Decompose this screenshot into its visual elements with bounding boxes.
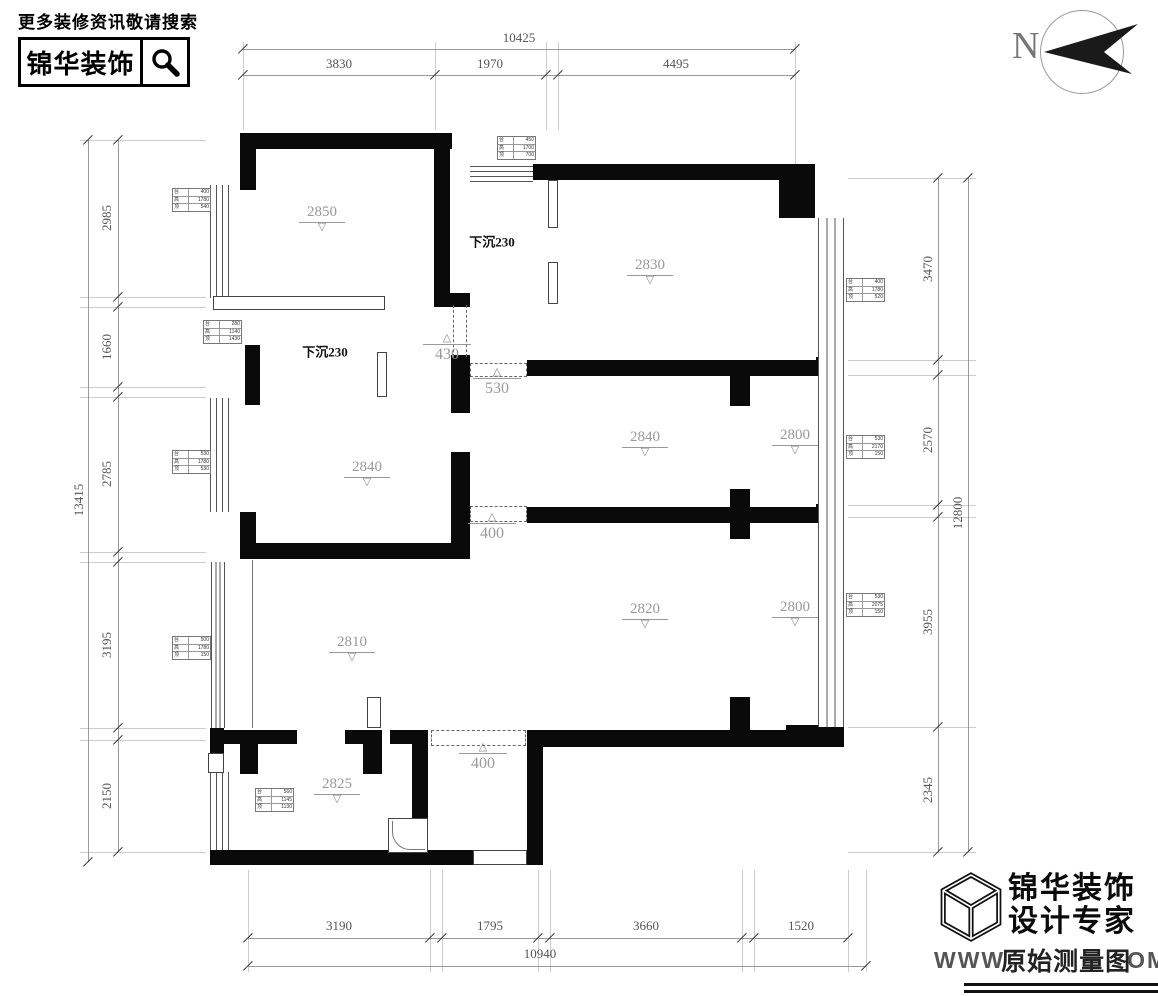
window-spec-cell: 1130 [272, 804, 293, 811]
window-spec-tag: 台450高1700顶700 [497, 136, 536, 160]
window-spec-cell: 560 [272, 789, 293, 796]
window-spec-cell: 台 [847, 279, 863, 286]
window [211, 562, 225, 728]
window-spec-cell: 1780 [863, 287, 884, 294]
extension-line [848, 178, 976, 179]
ceiling-level-marker: 2850▽ [299, 205, 345, 233]
dim-label: 2570 [920, 427, 936, 453]
wall [210, 850, 247, 865]
level-triangle-icon: ▽ [344, 477, 390, 488]
extension-line [795, 130, 796, 164]
wall [240, 133, 452, 149]
window-spec-row: 台530 [173, 451, 210, 459]
extension-line [558, 42, 559, 130]
window-spec-row: 顶1130 [256, 804, 293, 811]
level-triangle-icon: ▽ [299, 222, 345, 233]
dim-label: 2785 [99, 461, 115, 487]
extension-line [795, 42, 796, 130]
fixture [548, 262, 558, 304]
window-spec-row: 顶530 [173, 466, 210, 473]
extension-line [80, 740, 206, 741]
extension-line [754, 870, 755, 972]
window-spec-cell: 540 [189, 204, 210, 211]
window-spec-cell: 台 [847, 436, 863, 443]
fixture [367, 697, 381, 728]
window-spec-row: 高2075 [847, 602, 884, 610]
window-spec-cell: 顶 [498, 152, 514, 159]
ceiling-level-marker: 2830▽ [627, 258, 673, 286]
opening-line [468, 523, 516, 524]
dim-label: 2985 [99, 205, 115, 231]
window-spec-cell: 高 [256, 797, 272, 804]
window-spec-cell: 高 [498, 145, 514, 152]
north-compass: N [1030, 6, 1148, 98]
dim-label: 10425 [503, 30, 536, 46]
level-triangle-icon: ▽ [329, 652, 375, 663]
window-spec-cell: 顶 [173, 204, 189, 211]
extension-line [80, 140, 206, 141]
wall [527, 730, 844, 747]
wall [363, 742, 382, 774]
wall [730, 489, 750, 539]
dim-label: 4495 [663, 56, 689, 72]
level-triangle-icon: ▽ [772, 445, 818, 456]
dim-label: 1520 [788, 918, 814, 934]
level-triangle-icon: ▽ [622, 447, 668, 458]
window-spec-tag: 台400高1780顶540 [172, 188, 211, 212]
floor-plan-page: 更多装修资讯敬请搜索 锦华装饰 N [0, 0, 1158, 996]
opening-line [423, 344, 471, 345]
wall [527, 745, 543, 865]
extension-line [80, 728, 206, 729]
window-spec-row: 顶150 [847, 609, 884, 616]
window-spec-cell: 台 [173, 637, 189, 644]
opening-value: 400 [471, 755, 495, 772]
ceiling-level-marker: 2820▽ [622, 602, 668, 630]
window-spec-cell: 400 [189, 189, 210, 196]
ceiling-level-marker: 2840▽ [344, 460, 390, 488]
window-spec-row: 顶520 [847, 294, 884, 301]
window-spec-cell: 1780 [189, 645, 210, 652]
window-spec-cell: 顶 [847, 294, 863, 301]
window-spec-tag: 台500高1780顶150 [172, 636, 211, 660]
window-spec-cell: 1780 [189, 197, 210, 204]
window-spec-cell: 台 [847, 594, 863, 601]
brand-box: 锦华装饰 [18, 37, 190, 87]
window-spec-cell: 1140 [220, 329, 241, 336]
window-spec-row: 顶150 [847, 451, 884, 458]
ceiling-level-marker: 2800▽ [772, 600, 818, 628]
fixture [208, 753, 224, 773]
ceiling-level-marker: 2840▽ [622, 430, 668, 458]
partition-line [252, 560, 253, 728]
extension-line [80, 387, 206, 388]
dim-line [243, 49, 795, 50]
window-spec-cell: 1145 [272, 797, 293, 804]
header-brand-block: 更多装修资讯敬请搜索 锦华装饰 [18, 8, 198, 87]
extension-line [80, 297, 206, 298]
window-spec-tag: 台280高1140顶1430 [203, 320, 242, 344]
window-spec-cell: 530 [863, 436, 884, 443]
window-spec-row: 高1780 [173, 645, 210, 653]
dim-label: 1970 [477, 56, 503, 72]
dim-label: 10940 [524, 946, 557, 962]
compass-arrow-icon [1042, 12, 1142, 90]
extension-line [80, 397, 206, 398]
compass-north-label: N [1012, 24, 1039, 68]
window-spec-cell: 台 [204, 321, 220, 328]
fixture [548, 180, 558, 228]
window-spec-cell: 顶 [204, 336, 220, 343]
brand-name: 锦华装饰 [21, 40, 140, 84]
wall [527, 360, 827, 376]
window-spec-tag: 台530高2075顶150 [846, 593, 885, 617]
window-spec-row: 高1780 [173, 197, 210, 205]
dim-label: 3470 [920, 256, 936, 282]
level-value: 2810 [337, 634, 367, 650]
extension-line [546, 42, 547, 130]
window-spec-row: 高1145 [256, 797, 293, 805]
window-spec-cell: 高 [847, 287, 863, 294]
extension-line [848, 852, 976, 853]
window [210, 772, 229, 850]
wall [240, 133, 256, 190]
dim-line [968, 178, 969, 852]
window [470, 166, 533, 182]
window-spec-cell: 高 [173, 197, 189, 204]
window-spec-row: 顶1430 [204, 336, 241, 343]
window [818, 218, 844, 727]
opening-height-marker: △530 [473, 367, 521, 397]
extension-line [442, 870, 443, 972]
search-icon [143, 40, 187, 84]
window-spec-cell: 1780 [189, 459, 210, 466]
window-spec-cell: 顶 [173, 466, 189, 473]
extension-line [848, 727, 976, 728]
window-spec-cell: 高 [847, 444, 863, 451]
dim-label: 12800 [950, 497, 966, 530]
dim-label: 2150 [99, 783, 115, 809]
opening-value: 430 [435, 346, 459, 363]
footer-rule [964, 983, 1158, 993]
level-value: 2840 [630, 429, 660, 445]
window-spec-cell: 1700 [514, 145, 535, 152]
dim-label: 3830 [326, 56, 352, 72]
opening-triangle-icon: △ [473, 367, 521, 378]
ceiling-level-marker: 2825▽ [314, 777, 360, 805]
dim-label: 1795 [477, 918, 503, 934]
fixture [213, 296, 385, 310]
wall [527, 507, 827, 523]
opening-height-marker: △400 [468, 512, 516, 542]
extension-line [430, 870, 431, 972]
window-spec-cell: 2170 [863, 444, 884, 451]
level-triangle-icon: ▽ [772, 617, 818, 628]
wall [240, 543, 470, 559]
level-triangle-icon: ▽ [622, 619, 668, 630]
footer-logo-block: 锦华装饰 设计专家 WWW 原始测量图 OM [940, 872, 1158, 993]
footer-url-left: WWW [934, 947, 1005, 974]
level-value: 2830 [635, 257, 665, 273]
dim-label: 13415 [71, 484, 87, 517]
opening-value: 400 [480, 525, 504, 542]
header-tagline: 更多装修资讯敬请搜索 [18, 8, 198, 33]
window-spec-tag: 台560高1145顶1130 [255, 788, 294, 812]
window-spec-cell: 400 [863, 279, 884, 286]
window-spec-row: 台280 [204, 321, 241, 329]
extension-line [80, 852, 206, 853]
window-spec-row: 顶150 [173, 652, 210, 659]
opening-value: 530 [485, 380, 509, 397]
extension-line [80, 307, 206, 308]
dim-label: 3190 [326, 918, 352, 934]
window-spec-cell: 500 [189, 637, 210, 644]
window-spec-row: 台450 [498, 137, 535, 145]
dim-label: 2345 [920, 777, 936, 803]
extension-line [866, 870, 867, 972]
footer-url-right: OM [1127, 947, 1158, 974]
window-spec-cell: 台 [173, 451, 189, 458]
dim-line [248, 966, 866, 967]
level-value: 2820 [630, 601, 660, 617]
window-spec-cell: 280 [220, 321, 241, 328]
wall [779, 164, 815, 218]
window-spec-cell: 150 [863, 609, 884, 616]
window-spec-row: 台400 [173, 189, 210, 197]
opening-triangle-icon: △ [423, 333, 471, 344]
window-spec-row: 台400 [847, 279, 884, 287]
level-value: 2825 [322, 776, 352, 792]
window-spec-cell: 高 [173, 459, 189, 466]
opening-triangle-icon: △ [459, 742, 507, 753]
dim-label: 3660 [633, 918, 659, 934]
sunken-floor-label: 下沉230 [469, 232, 515, 251]
wall [245, 345, 260, 405]
window [210, 398, 229, 512]
opening-height-marker: △400 [459, 742, 507, 772]
level-triangle-icon: ▽ [627, 275, 673, 286]
fixture [473, 850, 527, 865]
window-spec-cell: 顶 [847, 451, 863, 458]
extension-line [248, 870, 249, 972]
window-spec-row: 高1700 [498, 145, 535, 153]
window-spec-cell: 顶 [256, 804, 272, 811]
dim-line [118, 140, 119, 852]
wall [533, 164, 795, 180]
footer-subtitle: 设计专家 [1008, 905, 1136, 938]
window-spec-row: 台530 [847, 436, 884, 444]
window-spec-cell: 1430 [220, 336, 241, 343]
window-spec-cell: 台 [256, 789, 272, 796]
extension-line [848, 375, 976, 376]
wall [240, 742, 258, 774]
opening-triangle-icon: △ [468, 512, 516, 523]
wall [451, 355, 470, 413]
window-spec-row: 高1140 [204, 329, 241, 337]
window-spec-cell: 高 [173, 645, 189, 652]
window-spec-row: 台500 [173, 637, 210, 645]
window-spec-cell: 700 [514, 152, 535, 159]
window-spec-cell: 台 [173, 189, 189, 196]
dim-label: 1660 [99, 334, 115, 360]
level-value: 2850 [307, 204, 337, 220]
wall [390, 730, 428, 744]
footer-url: WWW 原始测量图 OM [934, 942, 1158, 978]
window-spec-cell: 450 [514, 137, 535, 144]
window-spec-tag: 台530高1780顶530 [172, 450, 211, 474]
extension-line [243, 42, 244, 130]
opening-line [473, 378, 521, 379]
dim-label: 3195 [99, 632, 115, 658]
extension-line [848, 360, 976, 361]
wall [730, 376, 750, 406]
window-spec-row: 台530 [847, 594, 884, 602]
window-spec-cell: 150 [189, 652, 210, 659]
footer-brand: 锦华装饰 [1008, 872, 1136, 905]
level-value: 2800 [780, 427, 810, 443]
extension-line [80, 562, 206, 563]
ceiling-level-marker: 2810▽ [329, 635, 375, 663]
extension-line [742, 870, 743, 972]
window-spec-tag: 台400高1780顶520 [846, 278, 885, 302]
level-value: 2840 [352, 459, 382, 475]
fixture [377, 352, 387, 397]
level-triangle-icon: ▽ [314, 794, 360, 805]
window-spec-row: 高2170 [847, 444, 884, 452]
window-spec-row: 台560 [256, 789, 293, 797]
dim-label: 3955 [920, 609, 936, 635]
sunken-floor-label: 下沉230 [302, 342, 348, 361]
wall [247, 850, 473, 865]
extension-line [848, 870, 849, 972]
cube-icon [940, 872, 1002, 942]
window-spec-cell: 顶 [847, 609, 863, 616]
window-spec-row: 高1780 [173, 459, 210, 467]
dim-line [243, 75, 795, 76]
wall [434, 133, 450, 303]
window-spec-row: 顶540 [173, 204, 210, 211]
window-spec-row: 高1780 [847, 287, 884, 295]
window-spec-cell: 530 [863, 594, 884, 601]
wall [240, 512, 256, 559]
dim-line [88, 140, 89, 862]
extension-line [435, 42, 436, 130]
watermark-text: 原始测量图 [1001, 942, 1131, 978]
window-spec-row: 顶700 [498, 152, 535, 159]
ceiling-level-marker: 2800▽ [772, 428, 818, 456]
window [210, 185, 229, 298]
window-spec-cell: 150 [863, 451, 884, 458]
window-spec-cell: 520 [863, 294, 884, 301]
extension-line [80, 552, 206, 553]
window-spec-cell: 台 [498, 137, 514, 144]
window-spec-cell: 2075 [863, 602, 884, 609]
window-spec-cell: 高 [847, 602, 863, 609]
opening-height-marker: △430 [423, 333, 471, 363]
opening-line [459, 753, 507, 754]
window-spec-cell: 530 [189, 451, 210, 458]
level-value: 2800 [780, 599, 810, 615]
window-spec-cell: 顶 [173, 652, 189, 659]
window-spec-tag: 台530高2170顶150 [846, 435, 885, 459]
wall [730, 697, 750, 730]
window-spec-cell: 高 [204, 329, 220, 336]
window-spec-cell: 530 [189, 466, 210, 473]
